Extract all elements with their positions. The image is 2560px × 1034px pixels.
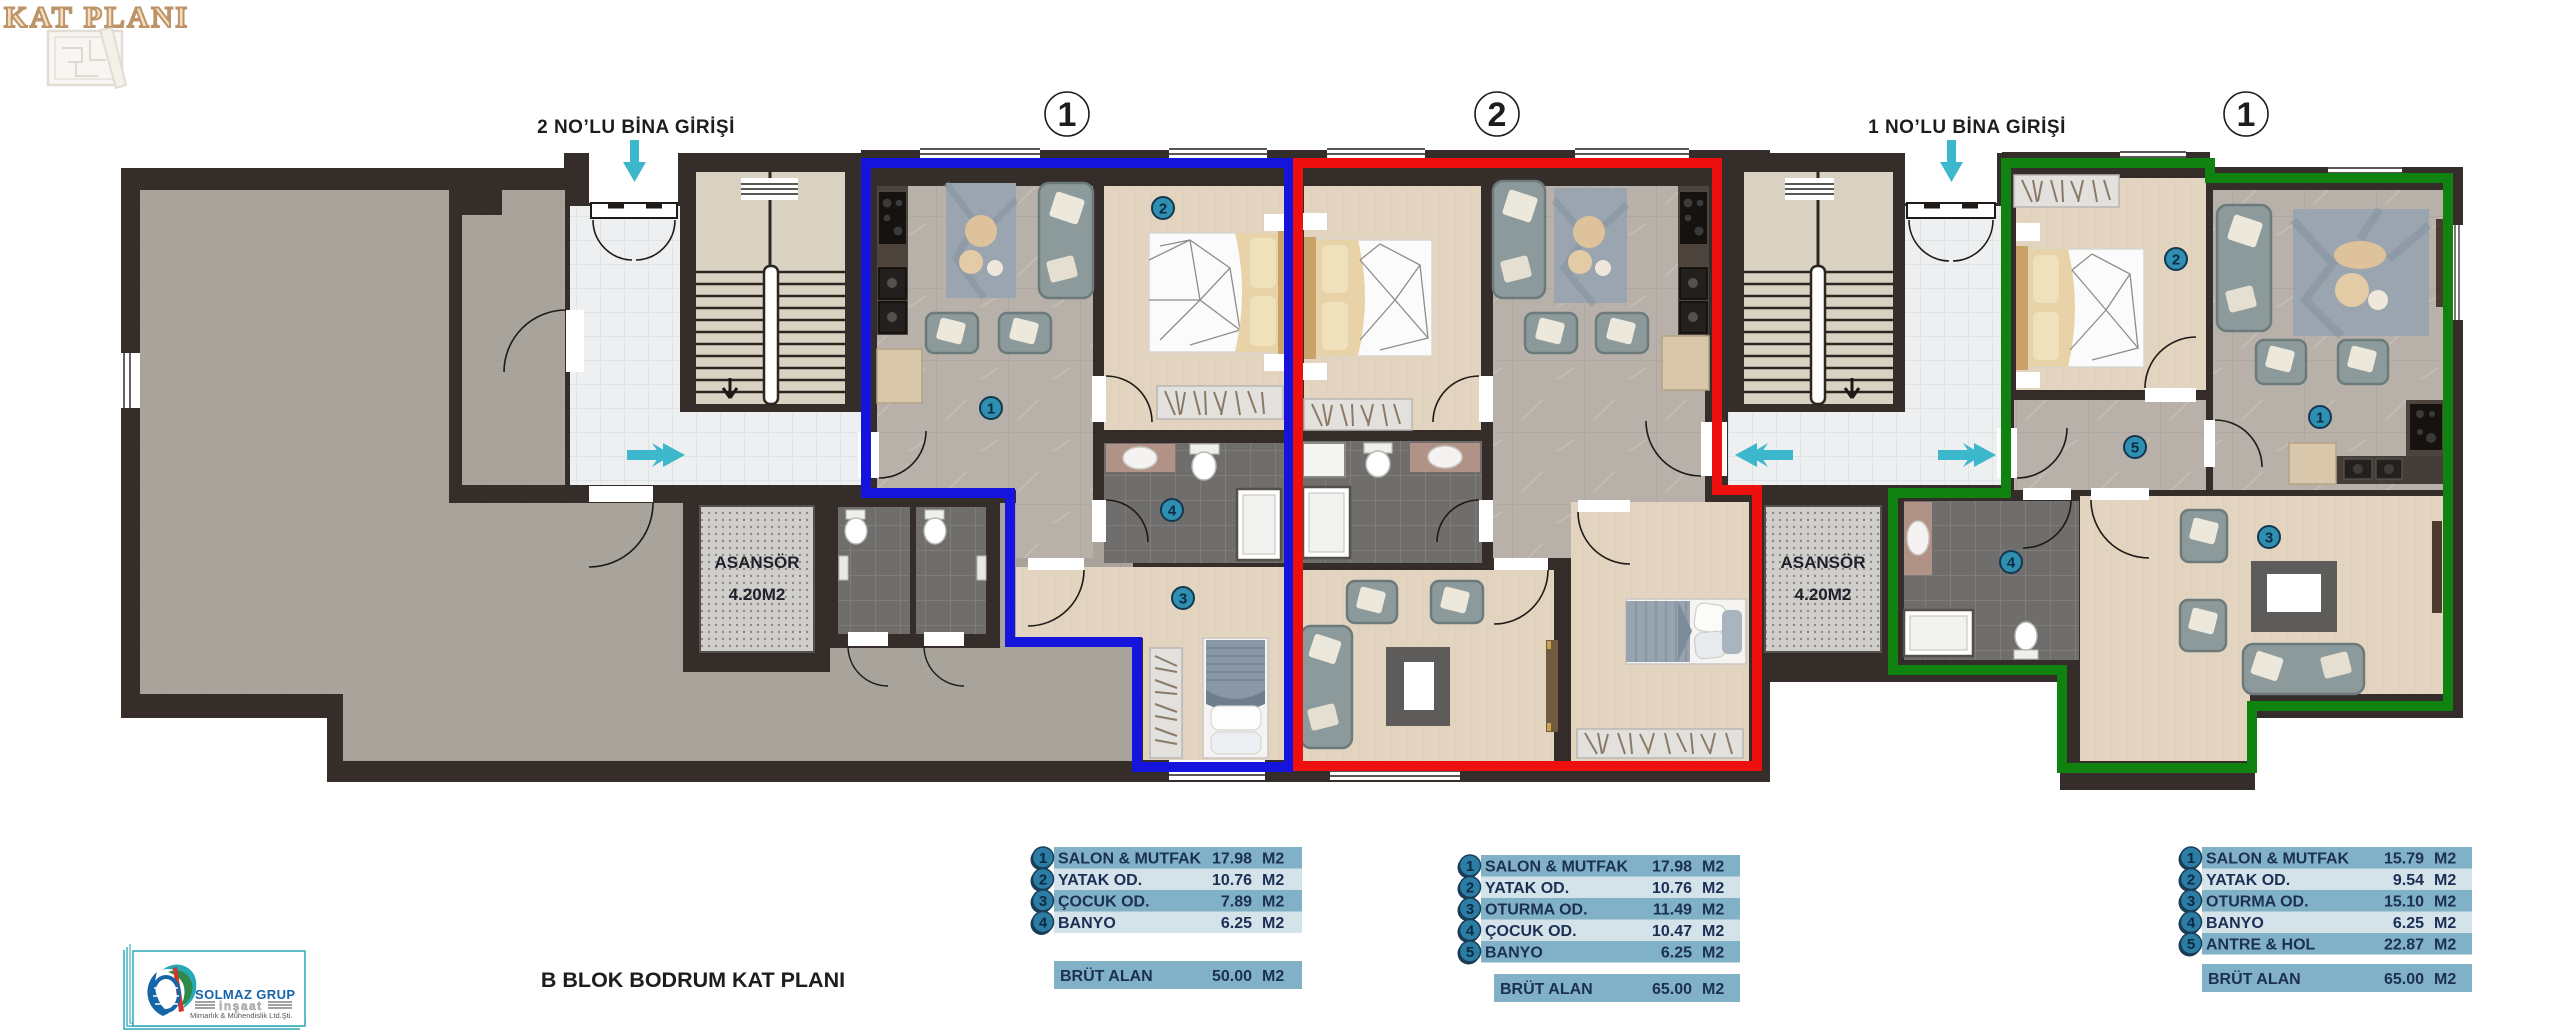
svg-text:YATAK OD.: YATAK OD.	[1058, 872, 1142, 889]
svg-text:SALON & MUTFAK: SALON & MUTFAK	[2206, 851, 2350, 868]
svg-text:5: 5	[2131, 440, 2139, 457]
svg-text:OTURMA OD.: OTURMA OD.	[2206, 894, 2309, 911]
svg-text:1: 1	[2237, 96, 2256, 134]
svg-text:M2: M2	[1702, 859, 1724, 876]
svg-text:YATAK OD.: YATAK OD.	[1485, 880, 1569, 897]
svg-text:M2: M2	[1702, 923, 1724, 940]
svg-text:BRÜT ALAN: BRÜT ALAN	[1500, 979, 1593, 998]
svg-text:ÇOCUK OD.: ÇOCUK OD.	[1485, 923, 1577, 940]
svg-text:15.10: 15.10	[2384, 894, 2424, 911]
svg-text:SALON & MUTFAK: SALON & MUTFAK	[1485, 859, 1629, 876]
svg-text:2: 2	[1466, 880, 1474, 897]
svg-text:1: 1	[2316, 410, 2324, 427]
svg-text:17.98: 17.98	[1212, 851, 1252, 868]
svg-text:BANYO: BANYO	[1485, 945, 1543, 962]
svg-text:M2: M2	[1702, 880, 1724, 897]
svg-text:M2: M2	[2434, 971, 2456, 988]
svg-text:M2: M2	[2434, 937, 2456, 954]
svg-text:6.25: 6.25	[1661, 945, 1692, 962]
svg-text:BANYO: BANYO	[1058, 915, 1116, 932]
svg-text:50.00: 50.00	[1212, 968, 1252, 985]
svg-text:4.20M2: 4.20M2	[1795, 585, 1852, 604]
svg-text:2: 2	[2172, 252, 2180, 269]
svg-text:6.25: 6.25	[2393, 915, 2424, 932]
svg-text:3: 3	[2265, 530, 2273, 547]
svg-text:2: 2	[1039, 872, 1047, 889]
svg-text:2 NO’LU BİNA GİRİŞİ: 2 NO’LU BİNA GİRİŞİ	[537, 117, 735, 138]
svg-text:M2: M2	[2434, 872, 2456, 889]
svg-text:3: 3	[2187, 893, 2195, 910]
svg-text:M2: M2	[1702, 902, 1724, 919]
svg-text:10.47: 10.47	[1652, 923, 1692, 940]
svg-text:M2: M2	[1262, 915, 1284, 932]
svg-text:M2: M2	[1702, 945, 1724, 962]
svg-text:4.20M2: 4.20M2	[729, 585, 786, 604]
svg-text:3: 3	[1039, 893, 1047, 910]
svg-text:M2: M2	[1262, 894, 1284, 911]
svg-text:4: 4	[1039, 915, 1048, 932]
svg-text:M2: M2	[1262, 968, 1284, 985]
svg-text:11.49: 11.49	[1653, 902, 1692, 919]
svg-text:1 NO’LU BİNA GİRİŞİ: 1 NO’LU BİNA GİRİŞİ	[1868, 117, 2066, 138]
svg-text:M2: M2	[1262, 872, 1284, 889]
svg-text:6.25: 6.25	[1221, 915, 1252, 932]
svg-text:ANTRE & HOL: ANTRE & HOL	[2206, 937, 2316, 954]
svg-text:B BLOK BODRUM KAT PLANI: B BLOK BODRUM KAT PLANI	[541, 968, 845, 992]
svg-text:SALON & MUTFAK: SALON & MUTFAK	[1058, 851, 1202, 868]
svg-text:3: 3	[1466, 901, 1474, 918]
svg-text:1: 1	[1039, 850, 1047, 867]
svg-text:4: 4	[1466, 923, 1475, 940]
svg-text:1: 1	[1466, 858, 1474, 875]
svg-text:Mimarlık & Mühendislik Ltd.Şti: Mimarlık & Mühendislik Ltd.Şti.	[190, 1011, 293, 1020]
svg-text:22.87: 22.87	[2384, 937, 2424, 954]
svg-text:65.00: 65.00	[2384, 971, 2424, 988]
svg-text:2: 2	[1488, 96, 1507, 134]
svg-text:10.76: 10.76	[1652, 880, 1692, 897]
svg-text:BRÜT ALAN: BRÜT ALAN	[1060, 966, 1153, 985]
svg-text:4: 4	[2007, 555, 2016, 572]
svg-text:17.98: 17.98	[1652, 859, 1692, 876]
svg-text:ASANSÖR: ASANSÖR	[714, 553, 799, 572]
svg-text:M2: M2	[1262, 851, 1284, 868]
svg-text:1: 1	[2187, 850, 2195, 867]
svg-text:5: 5	[2187, 936, 2195, 953]
svg-text:OTURMA OD.: OTURMA OD.	[1485, 902, 1588, 919]
svg-text:BANYO: BANYO	[2206, 915, 2264, 932]
svg-text:9.54: 9.54	[2393, 872, 2424, 889]
svg-text:4: 4	[2187, 915, 2196, 932]
svg-text:1: 1	[1058, 96, 1077, 134]
svg-text:1: 1	[987, 401, 995, 418]
svg-text:15.79: 15.79	[2384, 851, 2424, 868]
svg-text:ASANSÖR: ASANSÖR	[1780, 553, 1865, 572]
svg-text:M2: M2	[2434, 915, 2456, 932]
svg-text:KAT PLANI: KAT PLANI	[4, 1, 190, 34]
svg-text:3: 3	[1179, 591, 1187, 608]
svg-text:4: 4	[1168, 503, 1177, 520]
svg-text:BRÜT ALAN: BRÜT ALAN	[2208, 969, 2301, 988]
svg-text:M2: M2	[2434, 894, 2456, 911]
svg-text:YATAK OD.: YATAK OD.	[2206, 872, 2290, 889]
svg-text:2: 2	[1159, 201, 1167, 218]
svg-text:M2: M2	[2434, 851, 2456, 868]
svg-text:5: 5	[1466, 944, 1474, 961]
svg-text:M2: M2	[1702, 981, 1724, 998]
svg-text:2: 2	[2187, 872, 2195, 889]
svg-text:7.89: 7.89	[1221, 894, 1252, 911]
svg-text:10.76: 10.76	[1212, 872, 1252, 889]
svg-text:65.00: 65.00	[1652, 981, 1692, 998]
svg-text:ÇOCUK OD.: ÇOCUK OD.	[1058, 894, 1150, 911]
